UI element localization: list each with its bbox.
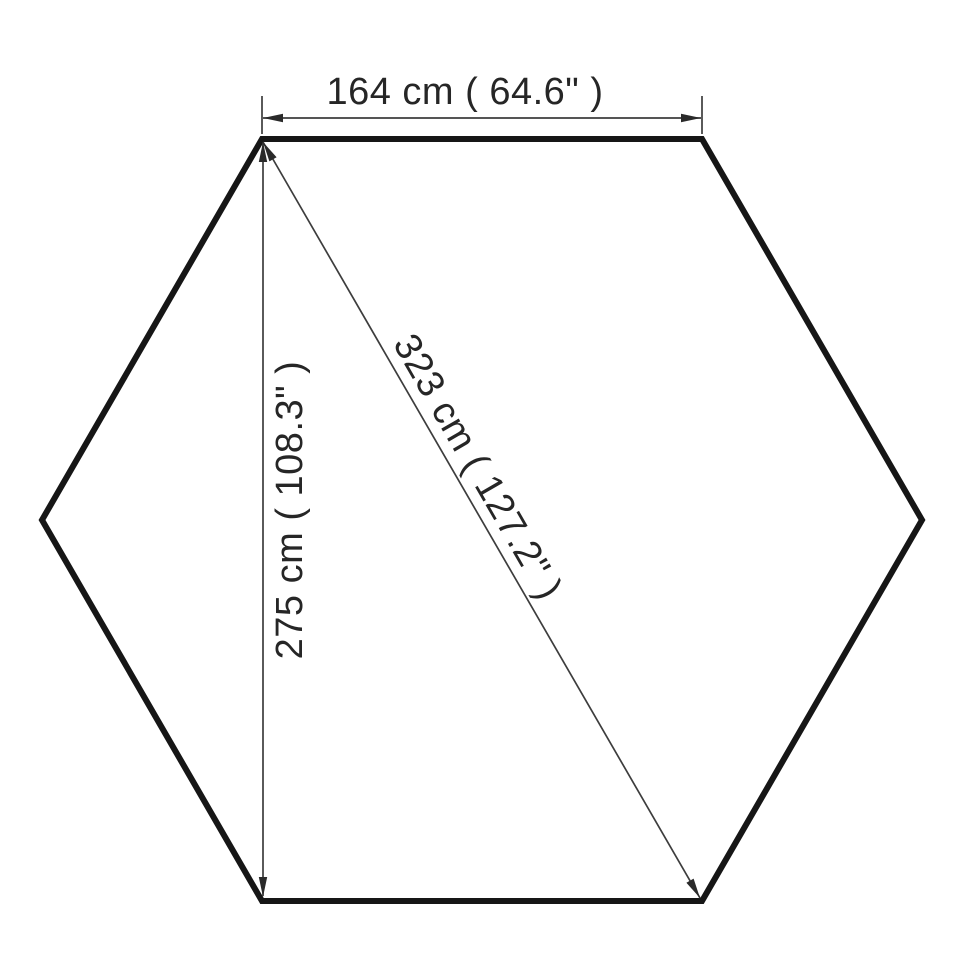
diagonal-dim-arrow-end (686, 879, 700, 898)
diagonal-dimension-label: 323 cm ( 127.2" ) (385, 327, 571, 607)
dimension-labels-group: 164 cm ( 64.6" ) 323 cm ( 127.2" ) 275 c… (269, 71, 604, 659)
dimension-diagram: 164 cm ( 64.6" ) 323 cm ( 127.2" ) 275 c… (0, 0, 960, 960)
diagonal-dimension-line (263, 142, 700, 898)
top-width-dimension-label: 164 cm ( 64.6" ) (326, 71, 603, 113)
dimension-diagram-canvas: 164 cm ( 64.6" ) 323 cm ( 127.2" ) 275 c… (0, 0, 960, 960)
top-dim-arrow-left (263, 114, 283, 122)
top-dim-arrow-right (681, 114, 701, 122)
height-dimension-label: 275 cm ( 108.3" ) (269, 361, 311, 660)
